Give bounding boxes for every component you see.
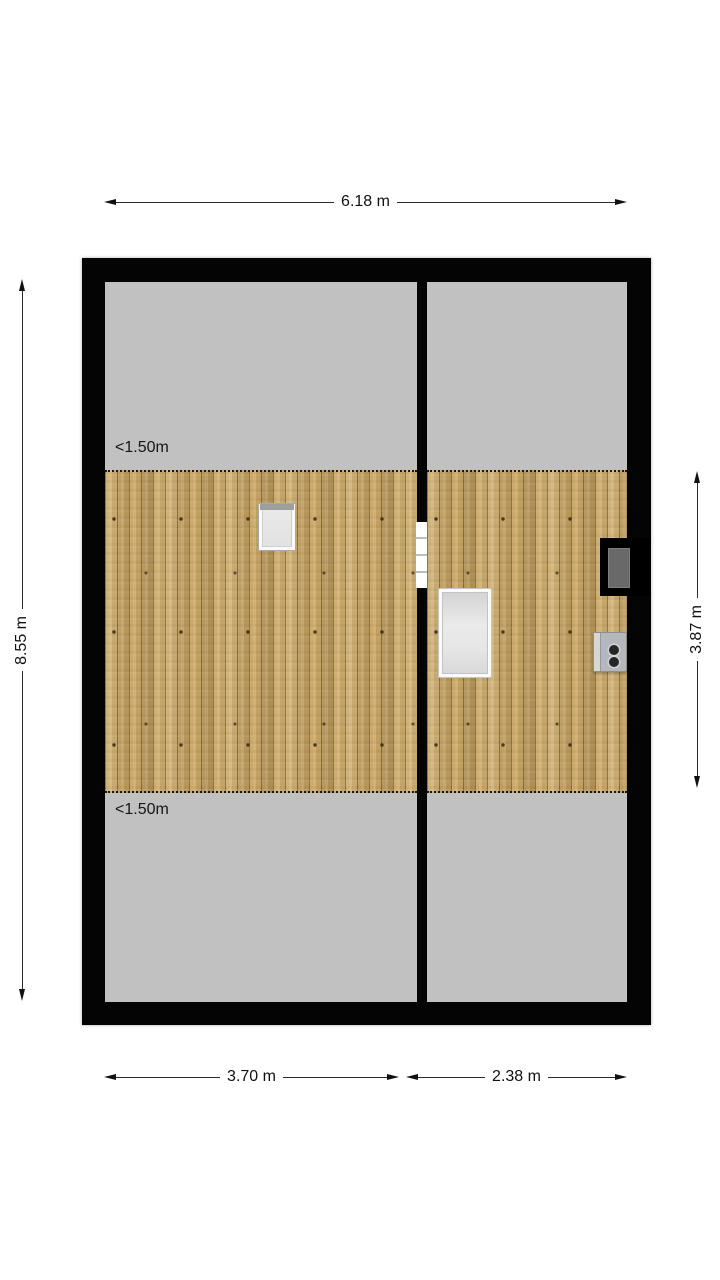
door-opening: [416, 522, 427, 588]
roof-window: [258, 503, 296, 551]
ventilation-unit-knob-icon: [609, 657, 619, 667]
headroom-label-top: <1.50m: [115, 439, 169, 457]
low-headroom-zone-bottom-left: <1.50m: [105, 793, 417, 1002]
dimension-line: [116, 202, 334, 203]
arrowhead-up-icon: [19, 279, 25, 291]
arrowhead-down-icon: [19, 989, 25, 1001]
dimension-line: [116, 1077, 220, 1078]
building-outline: <1.50m <1.50m: [82, 258, 651, 1025]
dimension-line: [548, 1077, 615, 1078]
low-headroom-zone-bottom-right: [427, 793, 627, 1002]
dimension-room-right-width-label: 2.38 m: [492, 1068, 541, 1086]
dimension-headroom-height-label: 3.87 m: [688, 605, 706, 654]
arrowhead-left-icon: [406, 1074, 418, 1080]
room-left: <1.50m <1.50m: [105, 282, 417, 1002]
dimension-line: [697, 661, 698, 776]
low-headroom-zone-top-left: <1.50m: [105, 282, 417, 470]
dimension-total-width: 6.18 m: [104, 192, 627, 212]
stair-opening: [438, 588, 492, 678]
arrowhead-right-icon: [387, 1074, 399, 1080]
arrowhead-left-icon: [104, 1074, 116, 1080]
low-headroom-zone-top-right: [427, 282, 627, 470]
headroom-label-bottom: <1.50m: [115, 801, 169, 819]
wall-window: [600, 538, 651, 596]
arrowhead-up-icon: [694, 471, 700, 483]
dimension-room-left-width-label: 3.70 m: [227, 1068, 276, 1086]
ventilation-unit: [593, 632, 627, 672]
dimension-line: [22, 291, 23, 609]
floorplan-canvas: 6.18 m 8.55 m 3.87 m 3.70 m 2.38 m: [0, 0, 720, 1280]
arrowhead-left-icon: [104, 199, 116, 205]
dimension-line: [283, 1077, 387, 1078]
ventilation-unit-edge: [594, 633, 601, 671]
dimension-line: [697, 483, 698, 598]
dimension-total-height: 8.55 m: [12, 279, 32, 1001]
arrowhead-right-icon: [615, 199, 627, 205]
arrowhead-down-icon: [694, 776, 700, 788]
dimension-line: [418, 1077, 485, 1078]
arrowhead-right-icon: [615, 1074, 627, 1080]
dimension-total-width-label: 6.18 m: [341, 193, 390, 211]
dimension-room-left-width: 3.70 m: [104, 1067, 399, 1087]
roof-window-glass: [262, 510, 292, 547]
ventilation-unit-knob-icon: [609, 645, 619, 655]
dimension-headroom-height: 3.87 m: [687, 471, 707, 788]
dimension-line: [22, 671, 23, 989]
stair-opening-inner: [442, 592, 488, 674]
dimension-line: [397, 202, 615, 203]
wall-window-glass: [608, 548, 630, 588]
dimension-room-right-width: 2.38 m: [406, 1067, 627, 1087]
dimension-total-height-label: 8.55 m: [13, 616, 31, 665]
